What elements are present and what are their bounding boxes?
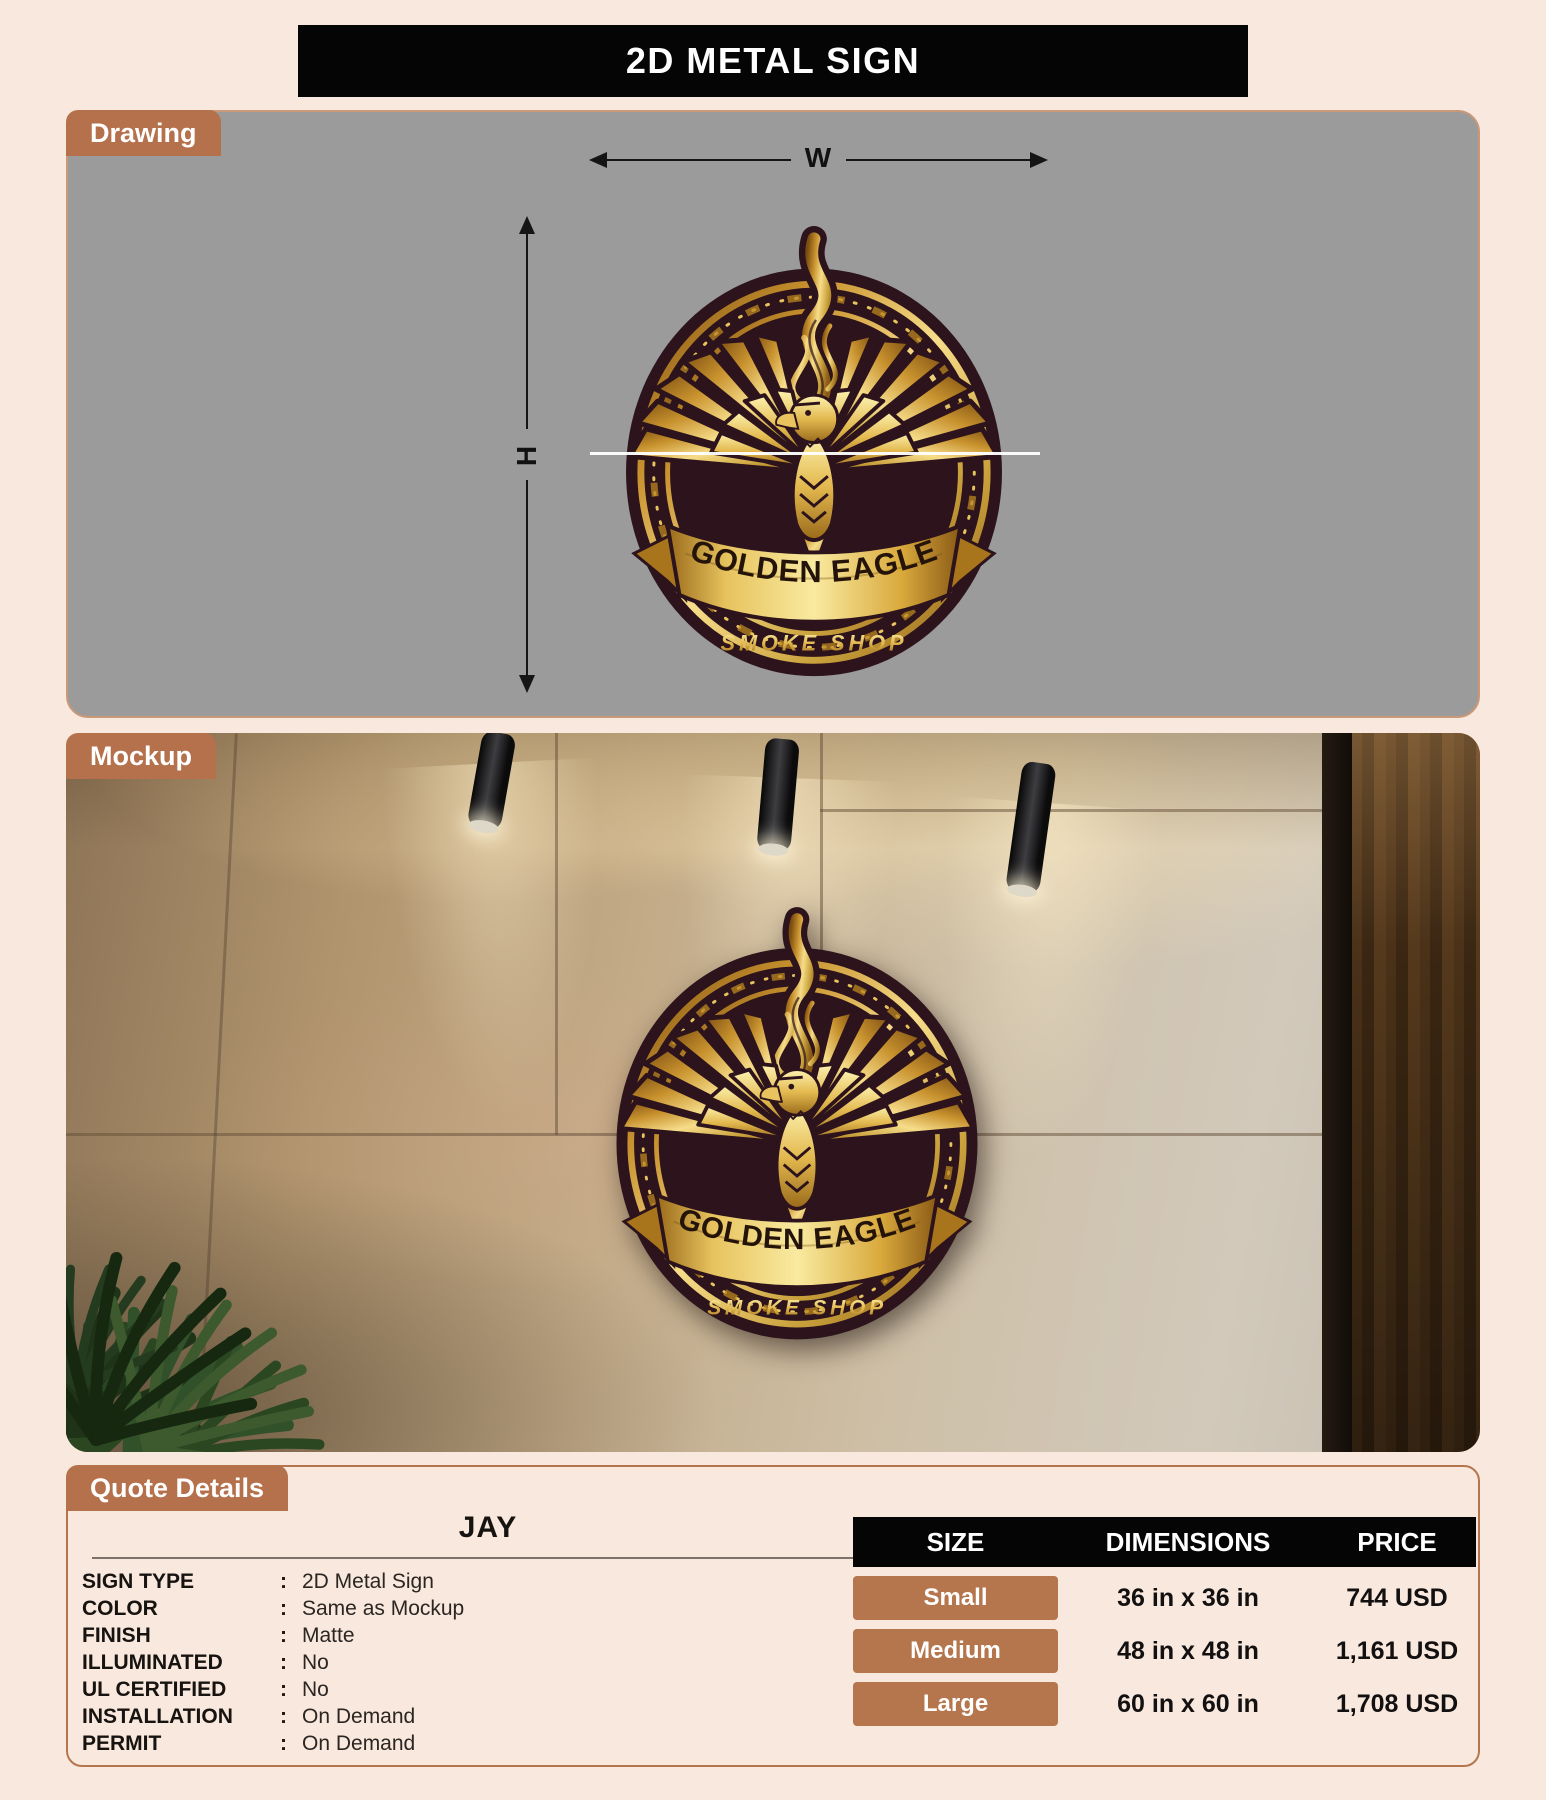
- tile-seam: [820, 809, 1324, 812]
- column-header-price: PRICE: [1318, 1517, 1476, 1567]
- wall-recess: [1322, 733, 1352, 1452]
- drawing-panel: W H: [66, 110, 1480, 718]
- spec-row: COLOR : Same as Mockup: [82, 1595, 464, 1622]
- spec-colon: :: [280, 1705, 302, 1729]
- spec-value: Matte: [302, 1624, 355, 1648]
- pricing-table-header: SIZE DIMENSIONS PRICE: [853, 1517, 1476, 1567]
- pricing-table: SIZE DIMENSIONS PRICE Small 36 in x 36 i…: [853, 1517, 1476, 1726]
- pricing-row-large: Large 60 in x 60 in 1,708 USD: [853, 1682, 1476, 1726]
- width-dim-line: [846, 159, 1031, 161]
- height-arrow-down-icon: [519, 675, 535, 693]
- drawing-centerline: [590, 452, 1040, 455]
- divider: [92, 1557, 898, 1559]
- spec-value: On Demand: [302, 1705, 415, 1729]
- spec-value: No: [302, 1651, 329, 1675]
- tab-mockup-label: Mockup: [90, 741, 192, 772]
- sign-mockup-image: [607, 904, 987, 1351]
- tab-drawing-label: Drawing: [90, 118, 197, 149]
- width-label: W: [788, 142, 848, 174]
- width-arrow-right-icon: [1030, 152, 1048, 168]
- height-dim-line: [526, 480, 528, 676]
- price-value: 744 USD: [1318, 1576, 1476, 1620]
- spec-label: COLOR: [82, 1597, 280, 1621]
- spec-row: INSTALLATION : On Demand: [82, 1703, 464, 1730]
- sign-drawing-image: [616, 223, 1012, 688]
- size-button-large[interactable]: Large: [853, 1682, 1058, 1726]
- mockup-panel: [66, 733, 1480, 1452]
- spec-colon: :: [280, 1732, 302, 1756]
- page-title-bar: 2D METAL SIGN: [298, 25, 1248, 97]
- dimensions-value: 36 in x 36 in: [1058, 1576, 1318, 1620]
- spec-row: FINISH : Matte: [82, 1622, 464, 1649]
- tab-quote-details-label: Quote Details: [90, 1473, 264, 1504]
- spec-value: 2D Metal Sign: [302, 1570, 434, 1594]
- price-value: 1,708 USD: [1318, 1682, 1476, 1726]
- dimensions-value: 60 in x 60 in: [1058, 1682, 1318, 1726]
- spec-label: SIGN TYPE: [82, 1570, 280, 1594]
- spec-label: FINISH: [82, 1624, 280, 1648]
- width-dim-line: [606, 159, 791, 161]
- tab-quote-details: Quote Details: [66, 1465, 288, 1511]
- spec-label: INSTALLATION: [82, 1705, 280, 1729]
- spec-row: UL CERTIFIED : No: [82, 1676, 464, 1703]
- wood-panel: [1352, 733, 1480, 1452]
- plant-image: [66, 1028, 416, 1452]
- spec-colon: :: [280, 1651, 302, 1675]
- height-dim-line: [526, 233, 528, 429]
- spec-row: PERMIT : On Demand: [82, 1730, 464, 1757]
- spec-value: No: [302, 1678, 329, 1702]
- page-title: 2D METAL SIGN: [626, 40, 920, 82]
- size-button-medium[interactable]: Medium: [853, 1629, 1058, 1673]
- column-header-size: SIZE: [853, 1517, 1058, 1567]
- height-arrow-up-icon: [519, 216, 535, 234]
- spec-row: ILLUMINATED : No: [82, 1649, 464, 1676]
- tab-mockup: Mockup: [66, 733, 216, 779]
- spec-label: UL CERTIFIED: [82, 1678, 280, 1702]
- spec-colon: :: [280, 1597, 302, 1621]
- spec-colon: :: [280, 1570, 302, 1594]
- spec-list: SIGN TYPE : 2D Metal Sign COLOR : Same a…: [82, 1568, 464, 1757]
- column-header-dimensions: DIMENSIONS: [1058, 1517, 1318, 1567]
- dimensions-value: 48 in x 48 in: [1058, 1629, 1318, 1673]
- price-value: 1,161 USD: [1318, 1629, 1476, 1673]
- spec-value: Same as Mockup: [302, 1597, 464, 1621]
- pricing-row-medium: Medium 48 in x 48 in 1,161 USD: [853, 1629, 1476, 1673]
- width-arrow-left-icon: [589, 152, 607, 168]
- spec-row: SIGN TYPE : 2D Metal Sign: [82, 1568, 464, 1595]
- spec-value: On Demand: [302, 1732, 415, 1756]
- quote-sheet: { "page": { "title": "2D METAL SIGN", "c…: [0, 0, 1546, 1800]
- spec-colon: :: [280, 1678, 302, 1702]
- spec-label: ILLUMINATED: [82, 1651, 280, 1675]
- customer-name: JAY: [108, 1511, 868, 1545]
- spec-label: PERMIT: [82, 1732, 280, 1756]
- tile-seam: [555, 733, 558, 1135]
- height-label: H: [511, 426, 543, 486]
- pricing-row-small: Small 36 in x 36 in 744 USD: [853, 1576, 1476, 1620]
- spec-colon: :: [280, 1624, 302, 1648]
- tab-drawing: Drawing: [66, 110, 221, 156]
- size-button-small[interactable]: Small: [853, 1576, 1058, 1620]
